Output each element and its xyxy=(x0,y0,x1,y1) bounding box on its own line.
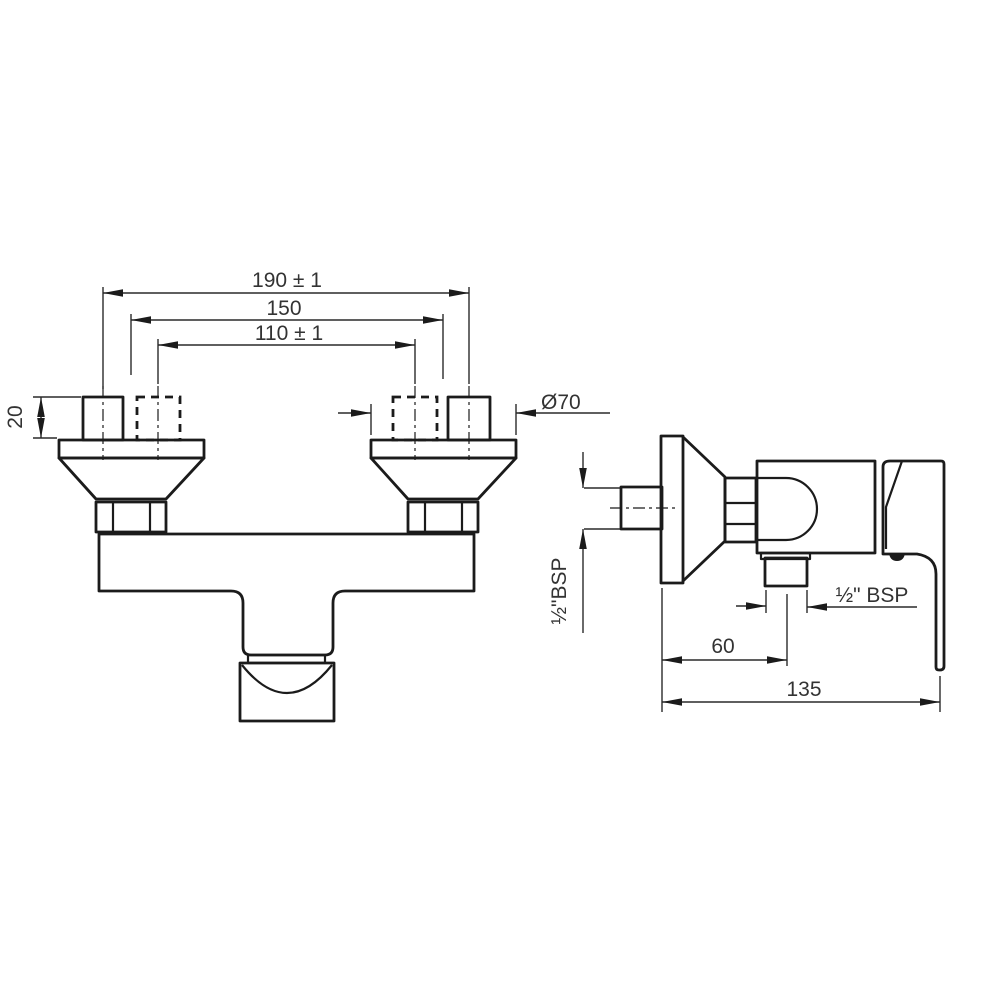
dimension-label-150: 150 xyxy=(266,297,301,320)
arrowhead xyxy=(807,603,827,611)
dimension-label-135: 135 xyxy=(786,678,821,701)
arrowhead xyxy=(920,698,940,706)
front-right-flange-cone xyxy=(371,458,516,499)
side-hex-nut xyxy=(725,478,756,542)
front-left-flange-band xyxy=(59,440,204,458)
side-wall-plate xyxy=(661,436,683,583)
front-outlet-cup-arc xyxy=(242,665,332,693)
arrowhead xyxy=(103,289,123,297)
dimension-label-70: Ø70 xyxy=(541,391,581,414)
front-left-hex-nut xyxy=(96,502,166,532)
arrowhead xyxy=(767,656,787,664)
arrowhead xyxy=(395,341,415,349)
arrowhead xyxy=(158,341,178,349)
arrowhead xyxy=(449,289,469,297)
arrowhead xyxy=(37,397,45,417)
front-right-hex-nut xyxy=(408,502,478,532)
side-flange-cone xyxy=(683,437,725,581)
arrowhead xyxy=(351,409,371,417)
technical-drawing-page: 190 ± 1 150 110 ± 1 20 Ø70 xyxy=(0,0,1000,1000)
front-dimensions: 190 ± 1 150 110 ± 1 20 Ø70 xyxy=(4,269,610,438)
arrowhead xyxy=(516,409,536,417)
arrowhead xyxy=(662,698,682,706)
dimension-label-60: 60 xyxy=(711,635,734,658)
dimension-label-20: 20 xyxy=(4,405,27,428)
front-left-flange-cone xyxy=(59,458,204,499)
side-body-arch xyxy=(757,478,817,540)
side-handle-slant-line xyxy=(886,461,902,549)
side-dimensions: ½"BSP ½" BSP 60 135 xyxy=(548,452,940,712)
arrowhead xyxy=(131,316,151,324)
front-body-outline xyxy=(99,534,474,655)
arrowhead xyxy=(746,602,766,610)
dimension-label-inlet-thread: ½"BSP xyxy=(548,558,571,625)
front-view xyxy=(59,386,516,721)
dimension-label-190: 190 ± 1 xyxy=(252,269,322,292)
arrowhead xyxy=(662,656,682,664)
dimension-label-outlet-thread: ½" BSP xyxy=(836,584,909,607)
arrowhead xyxy=(579,529,587,549)
arrowhead xyxy=(579,468,587,488)
dimension-label-110: 110 ± 1 xyxy=(255,322,323,345)
faucet-dimension-drawing: 190 ± 1 150 110 ± 1 20 Ø70 xyxy=(0,0,1000,1000)
arrowhead xyxy=(423,316,443,324)
side-view xyxy=(610,436,944,670)
side-set-screw xyxy=(889,553,905,561)
side-outlet-spout xyxy=(765,558,807,586)
arrowhead xyxy=(37,418,45,438)
front-right-flange-band xyxy=(371,440,516,458)
